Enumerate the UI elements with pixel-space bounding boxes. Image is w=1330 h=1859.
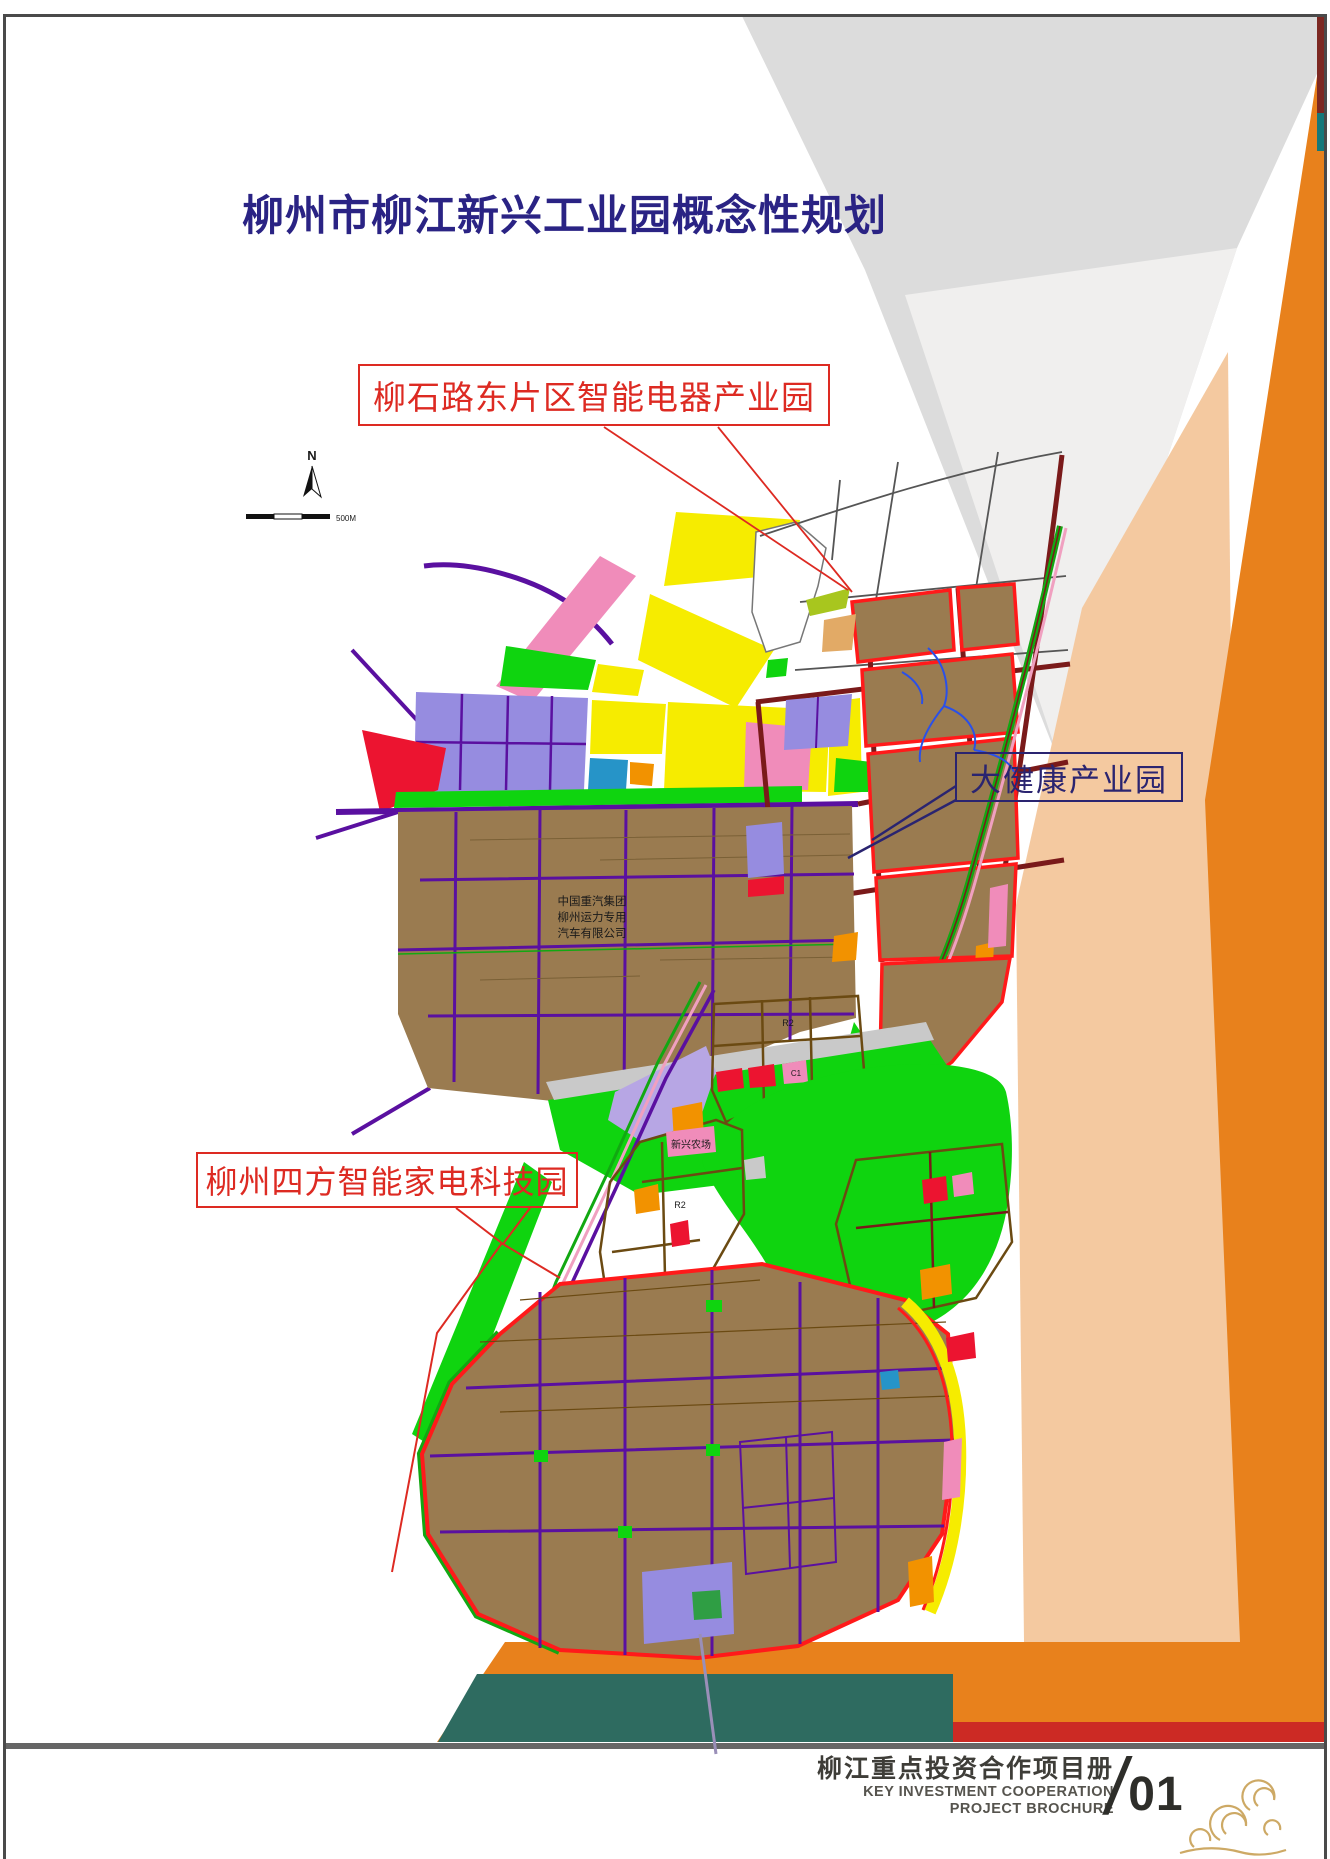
- brochure-page: 中国重汽集团 柳州运力专用 汽车有限公司: [0, 0, 1330, 1859]
- page-title: 柳州市柳江新兴工业园概念性规划: [242, 182, 887, 243]
- label-health-industrial-park: 大健康产业园: [955, 752, 1183, 802]
- page-graphics: 中国重汽集团 柳州运力专用 汽车有限公司: [0, 0, 1330, 1859]
- scale-bar: 500M: [246, 514, 356, 523]
- zone-code: R2: [782, 1018, 794, 1028]
- lower-industrial-grid: [422, 1264, 976, 1658]
- label-east-text: 柳石路东片区智能电器产业园: [373, 371, 815, 419]
- planning-map: 中国重汽集团 柳州运力专用 汽车有限公司: [246, 427, 1070, 1754]
- zone-code: C1: [791, 1069, 802, 1078]
- gold-cloud-ornament: [1180, 1780, 1286, 1854]
- footer-title-en-line1: KEY INVESTMENT COOPERATION: [817, 1784, 1114, 1801]
- teal-trapezoid: [438, 1674, 953, 1742]
- page-number-value: 01: [1128, 1764, 1183, 1826]
- scale-label: 500M: [336, 514, 356, 523]
- company-label-line2: 柳州运力专用: [558, 910, 627, 924]
- compass-n-label: N: [307, 448, 316, 463]
- footer-title-cn: 柳江重点投资合作项目册: [817, 1754, 1114, 1784]
- page-number: / 01: [1106, 1748, 1184, 1826]
- label-sifang-technology-park: 柳州四方智能家电科技园: [196, 1152, 578, 1208]
- label-east-industrial-park: 柳石路东片区智能电器产业园: [358, 364, 830, 426]
- company-label-line1: 中国重汽集团: [558, 894, 627, 908]
- farm-label: 新兴农场: [671, 1138, 711, 1151]
- company-label-line3: 汽车有限公司: [558, 926, 627, 940]
- footer-title-en-line2: PROJECT BROCHURE: [817, 1801, 1114, 1818]
- zone-code: R2: [674, 1200, 686, 1210]
- compass-rose: N: [303, 448, 321, 497]
- label-health-text: 大健康产业园: [970, 755, 1168, 800]
- label-sifang-text: 柳州四方智能家电科技园: [205, 1157, 568, 1203]
- footer: 柳江重点投资合作项目册 KEY INVESTMENT COOPERATION P…: [817, 1754, 1114, 1817]
- red-strip: [953, 1722, 1327, 1742]
